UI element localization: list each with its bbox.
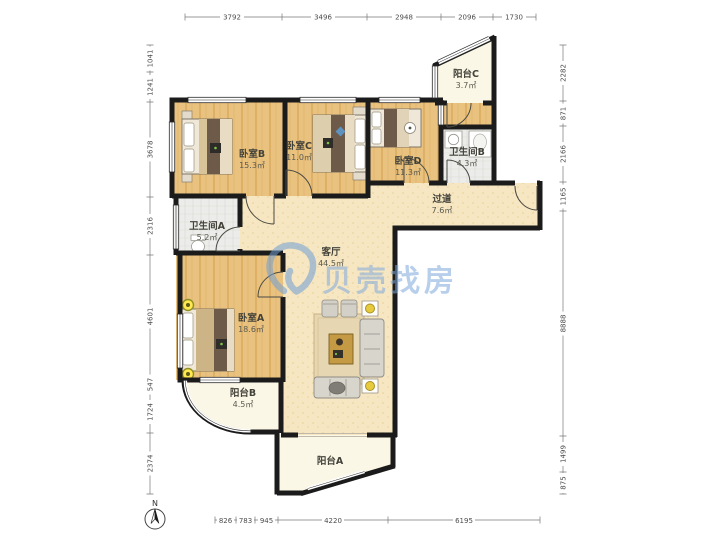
dim-top-0: 3792 <box>223 14 241 22</box>
bed-bedroom-a <box>181 300 234 380</box>
bedroom-c-area: 11.0㎡ <box>286 153 312 162</box>
dim-right-4: 8888 <box>560 315 568 333</box>
floorplan-page: 卧室B 15.3㎡ 卧室C 11.0㎡ 卧室D 11.3㎡ 卫生间B 4.3㎡ … <box>0 0 720 540</box>
bed-bedroom-d <box>370 109 421 147</box>
dim-left-5: 547 <box>147 378 155 391</box>
balcony-c-area: 3.7㎡ <box>456 81 477 90</box>
window-bathroom-a-left <box>173 205 178 249</box>
window-bedroom-d-top <box>379 97 420 102</box>
armchair <box>341 300 357 317</box>
coffee-table <box>329 334 353 364</box>
bedroom-c-label: 卧室C <box>286 140 312 152</box>
bedroom-b-area: 15.3㎡ <box>239 161 265 170</box>
floorplan-canvas: 卧室B 15.3㎡ 卧室C 11.0㎡ 卧室D 11.3㎡ 卫生间B 4.3㎡ … <box>0 0 720 540</box>
dim-top-1: 3496 <box>314 14 332 22</box>
dim-right-0: 2282 <box>560 64 568 82</box>
bathroom-a-label: 卫生间A <box>189 220 226 232</box>
balcony-a-label: 阳台A <box>317 455 344 467</box>
bedroom-a-area: 18.6㎡ <box>238 325 264 334</box>
balcony-b-label: 阳台B <box>230 387 256 399</box>
window-bedroom-b-left <box>169 122 174 172</box>
dim-left-6: 1724 <box>147 403 155 421</box>
dim-left-4: 4601 <box>147 308 155 326</box>
dim-left-0: 1041 <box>147 50 155 68</box>
dim-top-4: 1730 <box>505 14 523 22</box>
dim-right-3: 1165 <box>560 188 568 206</box>
bathroom-b-area: 4.3㎡ <box>457 159 478 168</box>
compass-north-label: N <box>152 499 158 508</box>
window-bedroom-b-top <box>188 97 246 102</box>
dimension-right: 2282 871 2166 1165 8888 1499 875 <box>558 45 568 494</box>
dim-left-3: 2316 <box>147 217 155 235</box>
armchair <box>322 300 338 317</box>
washer-bathroom-b <box>445 131 462 148</box>
dim-right-2: 2166 <box>560 145 568 163</box>
window-balcony-c-left <box>432 66 437 98</box>
ottoman <box>329 382 345 394</box>
bedroom-a-label: 卧室A <box>238 312 265 324</box>
dim-bottom-2: 945 <box>260 517 273 525</box>
window-balcony-b-slider <box>200 377 240 382</box>
sofa-right <box>360 319 384 377</box>
dim-right-6: 875 <box>560 476 568 489</box>
bedroom-d-area: 11.3㎡ <box>395 168 421 177</box>
hallway-label: 过道 <box>432 193 452 205</box>
bedroom-d-label: 卧室D <box>395 155 422 167</box>
dim-bottom-1: 783 <box>239 517 252 525</box>
dim-right-1: 871 <box>560 107 568 120</box>
window-bedroom-a-left <box>177 314 182 368</box>
dim-left-2: 3678 <box>147 141 155 159</box>
hallway-floor <box>368 183 540 228</box>
dim-top-2: 2948 <box>395 14 413 22</box>
living-room-label: 客厅 <box>320 246 341 258</box>
window-bedroom-c-top <box>300 97 356 102</box>
watermark-brand: 贝壳找房 <box>322 264 458 299</box>
dim-top-3: 2096 <box>458 14 476 22</box>
dim-bottom-3: 4220 <box>324 517 342 525</box>
balcony-b-area: 4.5㎡ <box>233 400 254 409</box>
dim-bottom-4: 6195 <box>455 517 473 525</box>
bed-bedroom-b <box>182 111 232 182</box>
bathroom-b-label: 卫生间B <box>449 146 485 158</box>
dim-left-1: 1241 <box>147 78 155 96</box>
dim-left-7: 2374 <box>147 454 155 472</box>
bathroom-a-area: 5.2㎡ <box>197 233 218 242</box>
dimension-left: 1041 1241 3678 2316 4601 547 1724 2374 <box>145 45 155 494</box>
sofa-set <box>314 300 384 398</box>
dim-right-5: 1499 <box>560 445 568 463</box>
compass: N <box>145 499 165 529</box>
window-passage-left <box>438 105 443 125</box>
bedroom-b-label: 卧室B <box>239 148 265 160</box>
hallway-area: 7.6㎡ <box>432 206 453 215</box>
dimension-top: 3792 3496 2948 2096 1730 <box>185 12 536 22</box>
balcony-c-label: 阳台C <box>453 68 479 80</box>
bed-bedroom-c <box>313 107 367 180</box>
dim-bottom-0: 826 <box>219 517 233 525</box>
dimension-bottom: 826 783 945 4220 6195 <box>215 515 540 524</box>
